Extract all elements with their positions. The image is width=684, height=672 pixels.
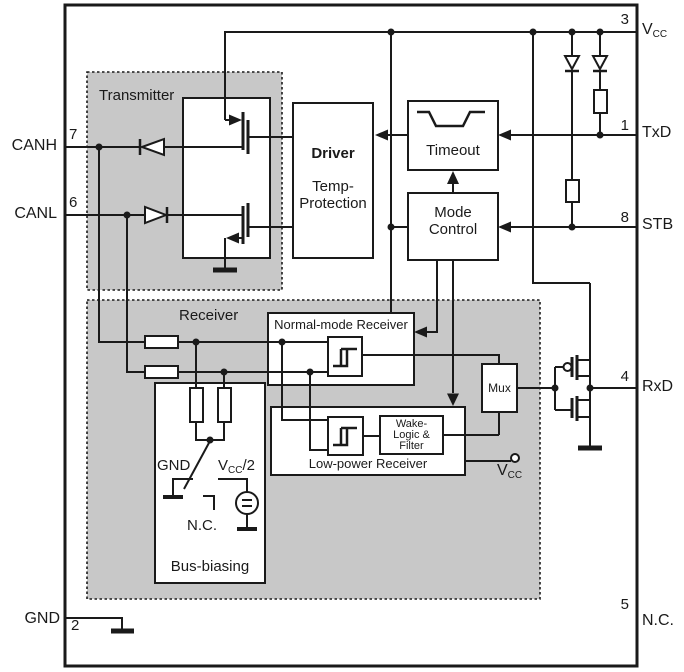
pin-label-nc: N.C. <box>642 613 674 629</box>
receiver-label: Receiver <box>179 308 238 323</box>
bus-biasing-label: Bus-biasing <box>155 559 265 574</box>
bus-biasing-box <box>155 383 265 583</box>
pin-label-vcc: VCC <box>642 22 667 40</box>
mode-to-timeout-wire <box>447 171 459 193</box>
pin-number-4: 4 <box>604 369 629 384</box>
low-power-receiver-label: Low-power Receiver <box>271 457 465 470</box>
bias-gnd-label: GND <box>157 458 190 473</box>
stb-pull-resistor <box>566 180 579 202</box>
open-terminal-icon <box>511 454 519 462</box>
bias-resistor-left <box>190 388 203 422</box>
mosfet-stage-box <box>183 98 270 258</box>
pin-number-6: 6 <box>69 195 77 210</box>
driver-subtitle-2: Protection <box>293 196 373 211</box>
mode-control-label-2: Control <box>408 222 498 237</box>
pin-label-canl: CANL <box>0 206 57 222</box>
wake-logic-label-3: Filter <box>380 441 443 452</box>
bias-vcc-half-label: VCC/2 <box>218 458 255 476</box>
pin-label-txd: TxD <box>642 125 671 141</box>
pin-number-7: 7 <box>69 127 77 142</box>
normal-mode-hysteresis-icon <box>328 337 362 376</box>
txd-pullup-resistor <box>594 90 607 113</box>
vcc-terminal-label: VCC <box>497 463 522 481</box>
mode-control-label-1: Mode <box>408 205 498 220</box>
voltage-source-icon <box>236 492 258 514</box>
can-transceiver-block-diagram: Transmitter Receiver Driver Temp- Protec… <box>0 0 684 672</box>
pin-number-2: 2 <box>71 618 79 633</box>
pin-label-stb: STB <box>642 217 673 233</box>
pin-number-3: 3 <box>604 12 629 27</box>
pin-label-canh: CANH <box>0 138 57 154</box>
pin-label-gnd: GND <box>0 611 60 627</box>
pin-label-rxd: RxD <box>642 379 673 395</box>
vcc-diode-icon <box>565 56 607 71</box>
canh-series-resistor <box>145 336 178 348</box>
low-power-hysteresis-icon <box>328 417 363 455</box>
driver-subtitle-1: Temp- <box>293 179 373 194</box>
bias-nc-label: N.C. <box>187 518 217 533</box>
bias-resistor-right <box>218 388 231 422</box>
pin-number-1: 1 <box>604 118 629 133</box>
pin-number-5: 5 <box>604 597 629 612</box>
normal-mode-receiver-label: Normal-mode Receiver <box>268 318 414 331</box>
pin-number-8: 8 <box>604 210 629 225</box>
driver-title: Driver <box>293 146 373 161</box>
transmitter-label: Transmitter <box>99 88 174 103</box>
timeout-label: Timeout <box>408 143 498 158</box>
rxd-inverter-icon <box>552 283 603 448</box>
canl-series-resistor <box>145 366 178 378</box>
mux-label: Mux <box>482 382 517 394</box>
